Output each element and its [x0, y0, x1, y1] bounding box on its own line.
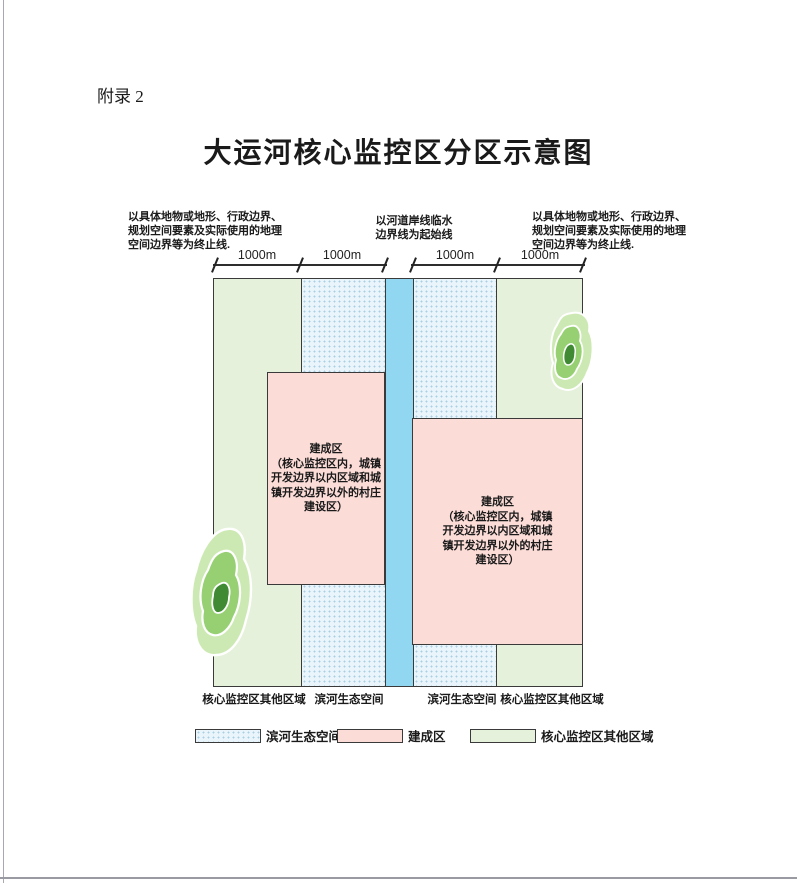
annotation-terminal-line-left: 以具体地物或地形、行政边界、 规划空间要素及实际使用的地理 空间边界等为终止线.	[128, 210, 282, 252]
river-channel	[385, 279, 413, 686]
annotation-river-start-line: 以河道岸线临水 边界线为起始线	[352, 214, 476, 242]
legend-label: 滨河生态空间	[266, 726, 341, 745]
terrain-feature-blob-left	[187, 524, 263, 660]
zone-label-other-right: 核心监控区其他区域	[500, 691, 604, 707]
appendix-label: 附录 2	[97, 82, 144, 107]
dimension-label: 1000m	[521, 248, 559, 262]
legend-swatch-other	[470, 729, 536, 743]
dimension-label: 1000m	[436, 248, 474, 262]
zone-label-other-left: 核心监控区其他区域	[202, 691, 306, 707]
built-area-label: 建成区 （核心监控区内，城镇 开发边界以内区域和城 镇开发边界以外的村庄 建设区…	[443, 495, 553, 568]
annotation-terminal-line-right: 以具体地物或地形、行政边界、 规划空间要素及实际使用的地理 空间边界等为终止线.	[532, 210, 686, 252]
page-edge-bottom	[0, 877, 797, 879]
built-area-box-right: 建成区 （核心监控区内，城镇 开发边界以内区域和城 镇开发边界以外的村庄 建设区…	[412, 418, 583, 645]
legend-label: 核心监控区其他区域	[541, 726, 654, 745]
document-page: 附录 2 大运河核心监控区分区示意图 以具体地物或地形、行政边界、 规划空间要素…	[0, 0, 797, 883]
dimension-label: 1000m	[238, 248, 276, 262]
page-title: 大运河核心监控区分区示意图	[0, 131, 797, 171]
legend-item-other: 核心监控区其他区域	[470, 726, 654, 745]
legend-item-eco: 滨河生态空间	[195, 726, 341, 745]
legend-label: 建成区	[408, 726, 446, 745]
legend-swatch-built	[337, 729, 403, 743]
legend-item-built: 建成区	[337, 726, 446, 745]
built-area-label: 建成区 （核心监控区内，城镇 开发边界以内区域和城 镇开发边界以外的村庄 建设区…	[271, 442, 381, 515]
built-area-box-left: 建成区 （核心监控区内，城镇 开发边界以内区域和城 镇开发边界以外的村庄 建设区…	[267, 372, 385, 585]
dimension-label: 1000m	[323, 248, 361, 262]
legend-swatch-eco	[195, 729, 261, 743]
zone-label-eco-left: 滨河生态空间	[315, 691, 384, 707]
zone-label-eco-right: 滨河生态空间	[428, 691, 497, 707]
terrain-feature-blob-right	[544, 310, 600, 396]
